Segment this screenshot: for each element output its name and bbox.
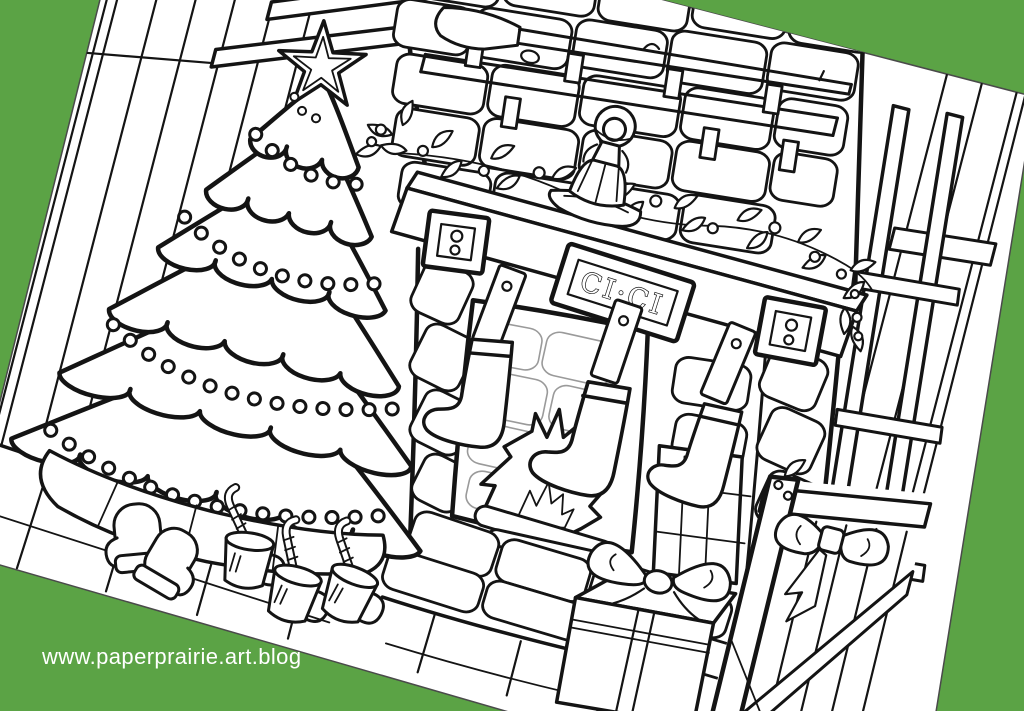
watermark: www.paperprairie.art.blog bbox=[42, 644, 301, 670]
frame-right bbox=[755, 297, 827, 365]
coloring-page-photo: CI·CI bbox=[0, 0, 1024, 711]
frame-left bbox=[423, 210, 490, 273]
scene-svg: CI·CI bbox=[0, 0, 1024, 711]
